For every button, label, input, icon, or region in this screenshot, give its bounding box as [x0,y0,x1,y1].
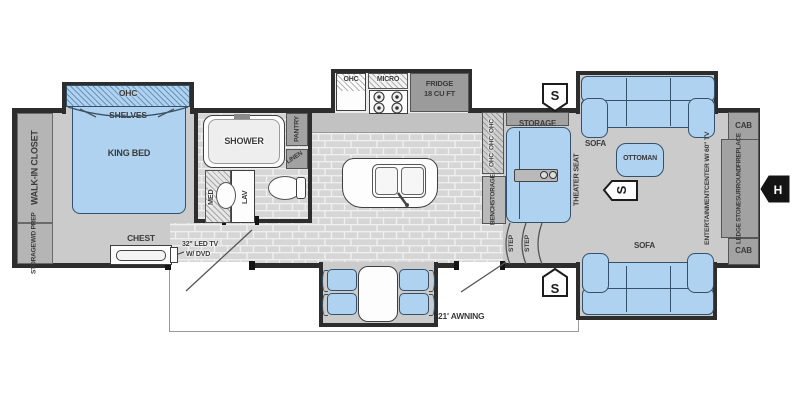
sofa-cushion-line [626,78,627,126]
bath-door-cap [255,216,259,225]
tv-label-line1: 32" LED TV [182,241,218,248]
bench-storage-label2: STORAGE [491,174,498,204]
shelves-label: SHELVES [94,111,162,120]
lav-sink [216,182,236,209]
walk-in-closet-label: WALK-IN CLOSET [30,131,39,206]
sofa-cushion-line [670,78,671,126]
step-label: STEP [508,236,515,253]
micro-label: MICRO [368,76,408,83]
sink-bowl-left [375,167,398,195]
cabinet-top-right: CAB [728,112,759,140]
bath-wall-bottom-b [258,219,312,223]
sofa-bottom-chaise-left [582,253,609,293]
theater-seat-label-wrap: THEATER SEAT [570,138,583,222]
chair-back [429,270,435,292]
chair-back [322,294,328,316]
shower-head [234,114,250,119]
storage-wd-prep: STORAGE W/D PREP [17,223,53,264]
sofa-cushion-line [626,266,627,312]
shower-label: SHOWER [203,137,285,146]
step-label: STEP [524,236,531,253]
entertainment-label1: ENTERTAINMENT [704,190,711,245]
bench-storage-label1: BENCH [491,204,498,225]
theater-seat-label: THEATER SEAT [573,154,581,206]
pantry: PANTRY [286,113,308,146]
storage-wd-prep-label1: STORAGE [32,243,39,274]
tv-label-line2: W/ DVD [186,251,210,258]
entertainment-center-label-wrap: ENTERTAINMENT CENTER W/ 60" TV [695,139,720,238]
lav-label-wrap: LAV [238,180,252,214]
dinette-table [358,266,398,322]
sofa-top-label: SOFA [585,140,606,148]
fridge-label-line1: FRIDGE [410,80,469,88]
sink-bowl-right [401,167,424,195]
kitchen-counter [312,113,482,133]
cab-bottom-label: CAB [735,247,752,255]
living-ohc-label: OHC [490,153,497,167]
entry-door-opening-mid [170,262,250,269]
storage-top: STORAGE [506,112,569,126]
king-bed-label: KING BED [72,149,186,158]
dinette-chair [327,293,357,315]
med-label: MED [207,189,215,205]
toilet-tank [296,177,306,199]
bath-wall-left [194,113,198,223]
chest-label: CHEST [110,234,172,243]
door-frame-cap [454,261,459,270]
pantry-label: PANTRY [293,117,300,143]
fireplace-label3: FIREPLACE [737,133,744,167]
dinette-chair [399,293,429,315]
sofa-bottom-chaise-right [687,253,714,293]
chair-back [429,294,435,316]
cupholder [549,171,557,179]
step-label-wrap: STEP [521,226,534,262]
fireplace: LEDGE STONE SURROUND FIREPLACE [721,139,759,238]
dinette-chair [399,269,429,291]
cabinet-bottom-right: CAB [728,238,759,265]
living-ohc-strip: OHC OHC OHC [482,112,504,174]
awning-label: 21' AWNING [438,312,484,321]
door-frame-cap [249,261,255,270]
bedroom-tv [170,247,178,263]
bench-storage: BENCH STORAGE [482,176,506,224]
step-label-wrap: STEP [505,226,518,262]
range [369,90,408,114]
sofa-cushion-line [670,266,671,312]
rv-floorplan: WALK-IN CLOSET STORAGE W/D PREP OHC SHEL… [0,0,800,400]
dinette-chair [327,269,357,291]
chest-drawer [116,250,166,261]
fireplace-label2: SURROUND [737,167,744,202]
sofa-bottom-label: SOFA [634,242,655,250]
storage-wd-prep-label2: W/D PREP [32,213,39,244]
bedroom-ohc-label: OHC [66,89,190,98]
entertainment-label2: CENTER W/ 60" TV [704,132,711,190]
living-ohc-label: OHC [490,119,497,133]
fireplace-label1: LEDGE STONE [737,201,744,244]
lav-label: LAV [241,190,249,203]
door-frame-cap [500,261,505,270]
med-label-wrap: MED [205,178,217,216]
fridge-label-line2: 18 CU FT [410,90,469,98]
kitchen-ohc-label: OHC [336,76,366,83]
cupholder [540,171,548,179]
cab-top-label: CAB [735,122,752,130]
ottoman-label: OTTOMAN [616,155,664,162]
entry-door-opening-rear [458,262,502,269]
sofa-top-chaise-left [581,98,608,138]
chair-back [322,270,328,292]
living-ohc-label: OHC [490,136,497,150]
walk-in-closet: WALK-IN CLOSET [17,113,53,223]
